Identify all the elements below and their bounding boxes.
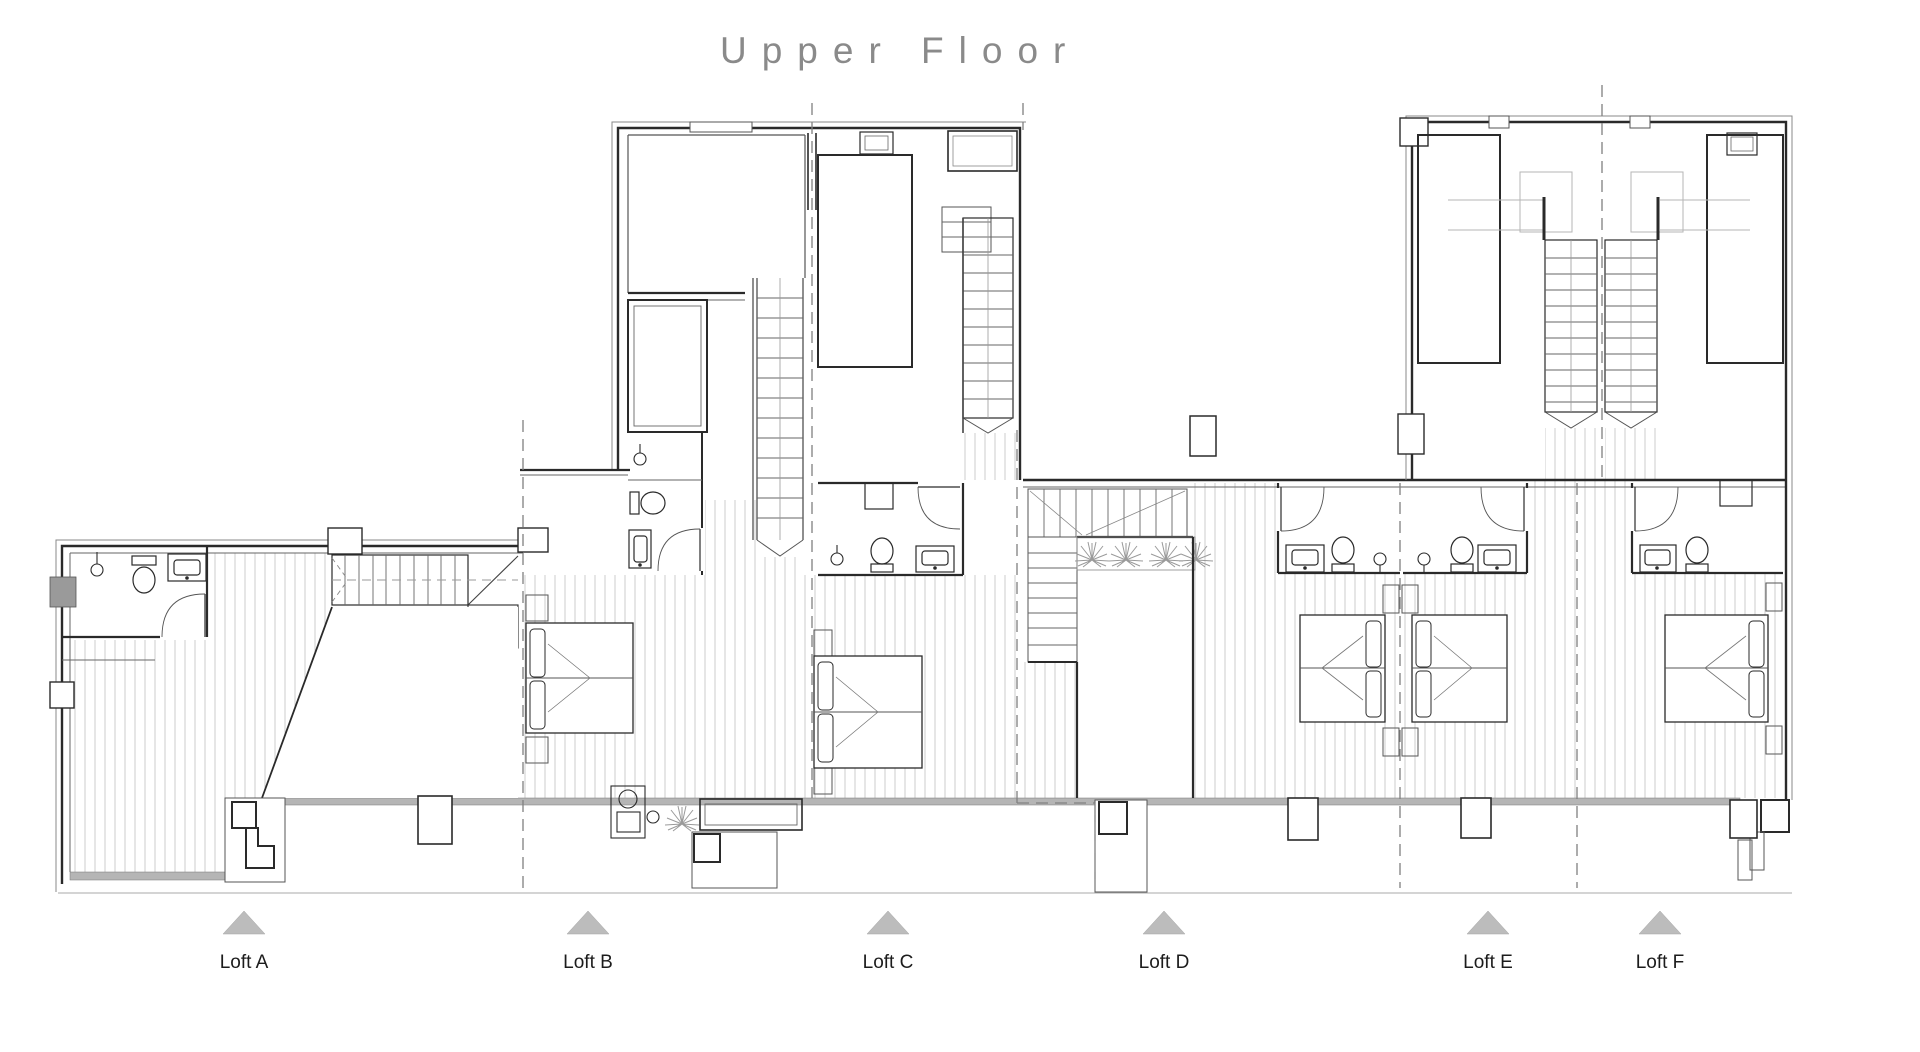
bathroom-f bbox=[1632, 480, 1783, 573]
chimney bbox=[328, 528, 362, 554]
shower-icon bbox=[831, 545, 843, 565]
balcony-slab bbox=[700, 799, 802, 830]
wall-pier bbox=[1398, 414, 1424, 454]
loft-label-a: Loft A bbox=[220, 952, 269, 973]
loft-marker-triangle bbox=[567, 911, 609, 934]
toilet-icon bbox=[1686, 537, 1708, 572]
toilet-icon bbox=[630, 492, 665, 514]
roof-terrace bbox=[948, 131, 1017, 171]
roof-opening bbox=[690, 122, 752, 132]
closet bbox=[865, 483, 893, 509]
closet-b bbox=[628, 300, 707, 432]
loft-marker-triangle bbox=[1467, 911, 1509, 934]
bedroom-c bbox=[818, 155, 912, 367]
gallery-opening bbox=[1448, 172, 1572, 232]
shower-icon bbox=[91, 552, 103, 576]
loft-label-b: Loft B bbox=[563, 952, 613, 973]
chimney bbox=[1190, 416, 1216, 456]
roof-opening bbox=[1489, 116, 1509, 128]
bathroom-d bbox=[1278, 483, 1400, 573]
loft-marker-triangle bbox=[223, 911, 265, 934]
bedroom-b bbox=[628, 135, 805, 300]
closet-c bbox=[860, 132, 893, 154]
bathroom-c bbox=[818, 483, 963, 575]
entry-vestibule bbox=[692, 832, 777, 888]
wall-pier bbox=[50, 682, 74, 708]
floor-plan-page: Upper Floor Loft A Loft B Loft C Loft D … bbox=[0, 0, 1920, 1052]
toilet-icon bbox=[132, 556, 156, 593]
loft-label-c: Loft C bbox=[863, 952, 914, 973]
page-title: Upper Floor bbox=[720, 30, 1080, 71]
roof-opening bbox=[1630, 116, 1650, 128]
shower-icon bbox=[634, 444, 646, 465]
terrace-post bbox=[418, 796, 452, 844]
closet bbox=[1720, 480, 1752, 506]
toilet-icon bbox=[1332, 537, 1354, 572]
entry-steps bbox=[225, 798, 285, 882]
loft-label-d: Loft D bbox=[1139, 952, 1190, 973]
bedroom-f bbox=[1707, 135, 1783, 363]
closet-f bbox=[1727, 133, 1757, 155]
stair-icon bbox=[942, 207, 1013, 433]
loft-label-e: Loft E bbox=[1463, 952, 1513, 973]
loft-marker-triangle bbox=[1639, 911, 1681, 934]
sink-icon bbox=[916, 546, 954, 572]
floor-plan-drawing: Upper Floor Loft A Loft B Loft C Loft D … bbox=[0, 0, 1920, 1052]
toilet-icon bbox=[871, 538, 893, 572]
bedroom-e bbox=[1418, 135, 1500, 363]
sink-icon bbox=[1286, 545, 1324, 572]
gallery-opening bbox=[1631, 172, 1750, 232]
shower-icon bbox=[1418, 553, 1430, 573]
sink-icon bbox=[168, 554, 206, 581]
loft-marker-triangle bbox=[1143, 911, 1185, 934]
bathroom-e bbox=[1403, 483, 1527, 573]
loft-markers: Loft A Loft B Loft C Loft D Loft E Loft … bbox=[220, 911, 1685, 973]
wall-pier bbox=[50, 577, 76, 607]
loft-marker-triangle bbox=[867, 911, 909, 934]
shower-icon bbox=[1374, 553, 1386, 573]
stair-icon bbox=[753, 278, 803, 556]
stair-icon bbox=[1028, 489, 1187, 662]
entry-vestibule bbox=[1095, 800, 1147, 892]
bathroom-b bbox=[628, 432, 702, 575]
wall-pier bbox=[1400, 118, 1428, 146]
terrace-band bbox=[58, 798, 1792, 893]
toilet-icon bbox=[1451, 537, 1473, 572]
sink-icon bbox=[1640, 545, 1676, 572]
sink-icon bbox=[1478, 545, 1516, 572]
sink-icon bbox=[629, 530, 651, 568]
loft-label-f: Loft F bbox=[1636, 952, 1685, 973]
void-open-to-below bbox=[1077, 537, 1193, 798]
